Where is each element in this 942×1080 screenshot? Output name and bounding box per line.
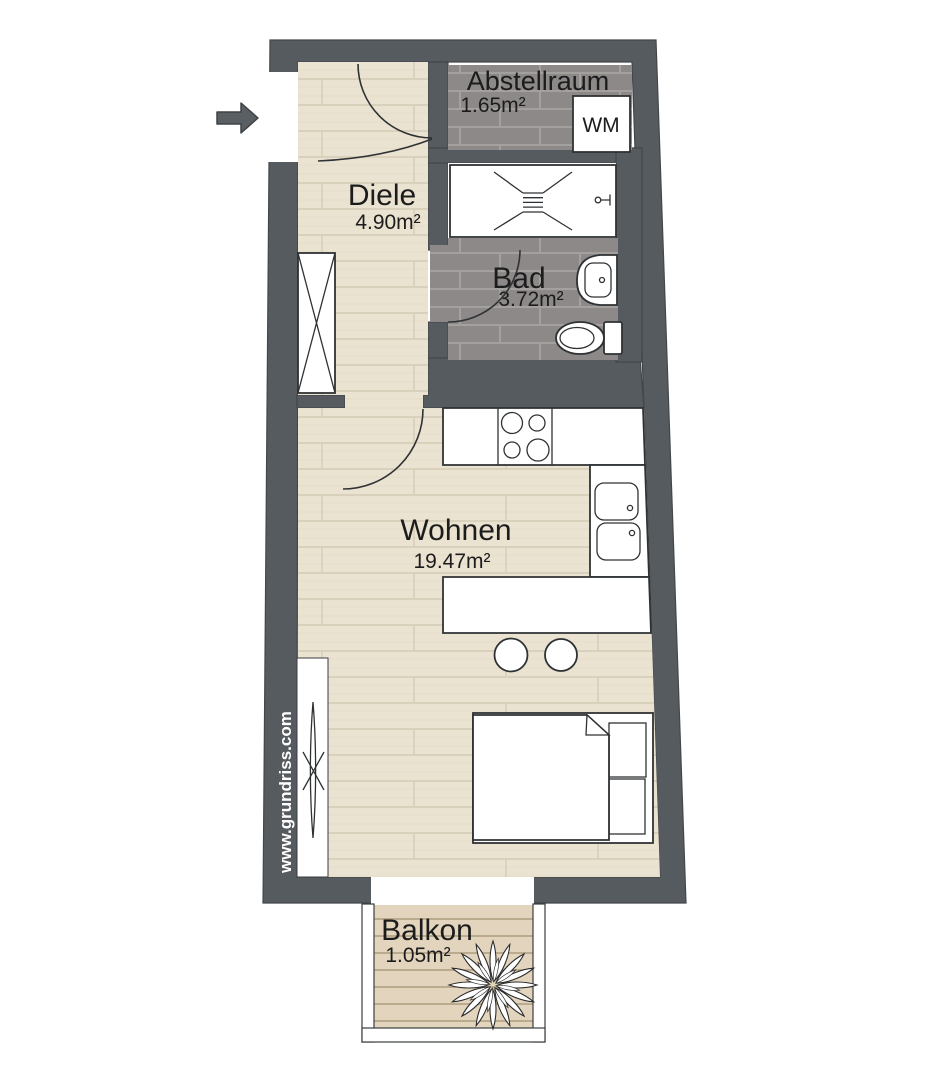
balcony-railing-right [533,904,545,1042]
washing-machine: WM [573,96,630,152]
breakfast-bar [443,577,651,633]
balcony-door-opening [371,877,534,904]
room-label-balkon: Balkon [381,914,473,947]
balcony-railing-left [362,904,374,1042]
room-label-wohnen: Wohnen [400,514,511,547]
wardrobe [298,253,335,393]
pillow [609,779,645,834]
window [297,658,328,877]
bathroom-sink [577,255,617,305]
washing-machine-label: WM [582,114,619,137]
bar-stool [495,639,528,672]
kitchen-counter [443,408,645,465]
bad-doorway-floor [430,245,448,322]
room-label-abstellraum: Abstellraum [467,66,610,96]
floorplan-drawing: Diele 4.90m² Abstellraum 1.65m² Bad 3.72… [0,0,942,1080]
floorplan-page: Diele 4.90m² Abstellraum 1.65m² Bad 3.72… [0,0,942,1080]
bar-stool [545,639,577,671]
kitchen-sink-1 [595,483,638,520]
room-area-balkon: 1.05m² [385,944,450,967]
watermark: www.grundriss.com [276,711,295,874]
entrance-door-opening [266,72,299,162]
diele-doorway-floor [345,395,423,408]
room-balkon: Balkon 1.05m² [362,904,545,1042]
wall-diele-bad [428,322,448,362]
balcony-railing-bottom [362,1028,545,1042]
room-area-diele: 4.90m² [355,211,420,234]
toilet [556,322,622,354]
room-area-wohnen: 19.47m² [413,550,490,573]
pillow [609,723,646,777]
wall-diele-wohnen [297,395,345,408]
bed [473,713,653,843]
room-area-bad: 3.72m² [498,288,563,311]
bathtub [450,165,616,237]
kitchen-sink-2 [597,523,640,560]
kitchen-sink-counter [590,465,649,577]
entry-arrow-icon [217,103,258,133]
room-area-abstellraum: 1.65m² [460,94,525,117]
room-label-diele: Diele [348,179,416,212]
wall-bad-wohnen [423,358,644,408]
